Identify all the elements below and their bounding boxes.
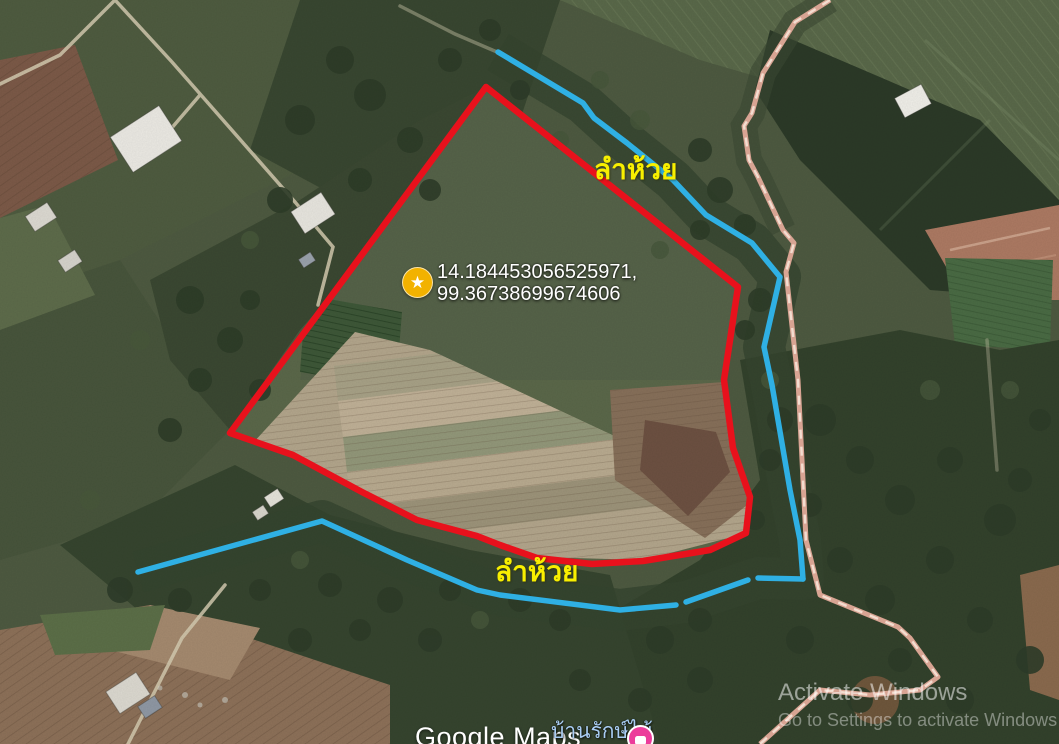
star-marker-icon[interactable]: ★ xyxy=(402,267,433,298)
activate-windows-subtext: Go to Settings to activate Windows xyxy=(778,710,1057,731)
coordinates-label: 14.184453056525971, 99.36738699674606 xyxy=(437,262,637,305)
stream-label-bottom: ลำห้วย xyxy=(495,550,578,594)
satellite-map-canvas[interactable]: 14.184453056525971, 99.36738699674606 ★ … xyxy=(0,0,1059,744)
coordinates-line1: 14.184453056525971, xyxy=(437,262,637,284)
stream-line-bottom-seg1 xyxy=(758,578,803,579)
coordinates-line2: 99.36738699674606 xyxy=(437,284,637,306)
activate-windows-watermark: Activate Windows xyxy=(778,679,967,707)
store-icon xyxy=(635,736,646,744)
satellite-basemap xyxy=(0,0,1059,744)
stream-label-top: ลำห้วย xyxy=(594,148,677,192)
